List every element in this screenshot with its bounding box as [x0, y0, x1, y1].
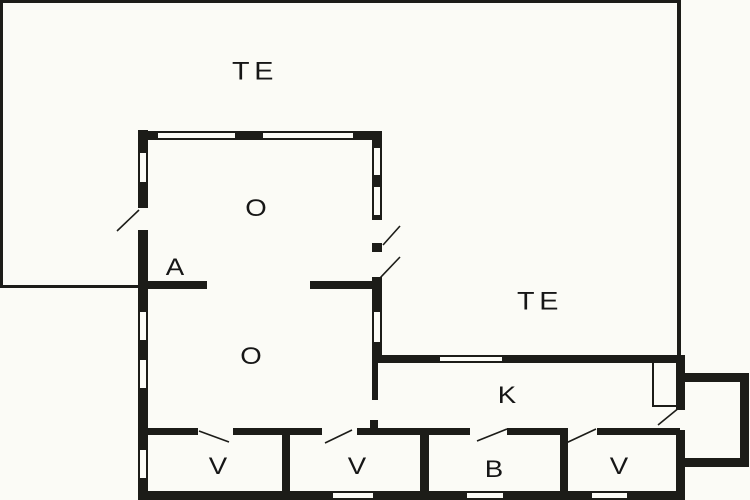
- door-swing-v2: [325, 430, 352, 443]
- door-swing-terrace-r1: [383, 226, 400, 245]
- room-label-o-upper: O: [245, 197, 266, 221]
- door-swing-porch: [658, 407, 680, 425]
- room-label-b: B: [485, 458, 503, 482]
- door-swing-terrace-r2: [380, 257, 400, 278]
- room-label-k: K: [498, 384, 516, 408]
- room-label-o-lower: O: [240, 345, 261, 369]
- door-swing-b: [477, 429, 507, 441]
- room-label-v2: V: [348, 455, 366, 479]
- door-swing-v1: [199, 431, 229, 442]
- room-label-te-right: TE: [517, 290, 563, 315]
- room-label-te-top: TE: [232, 60, 278, 85]
- door-swing-terrace-left: [117, 210, 139, 231]
- door-swing-v3: [566, 429, 596, 443]
- room-label-a: A: [166, 256, 184, 280]
- room-label-v1: V: [209, 455, 227, 479]
- door-swing-lines: [0, 0, 750, 500]
- floor-plan: TE TE O A O K V V B V: [0, 0, 750, 500]
- room-label-v3: V: [610, 455, 628, 479]
